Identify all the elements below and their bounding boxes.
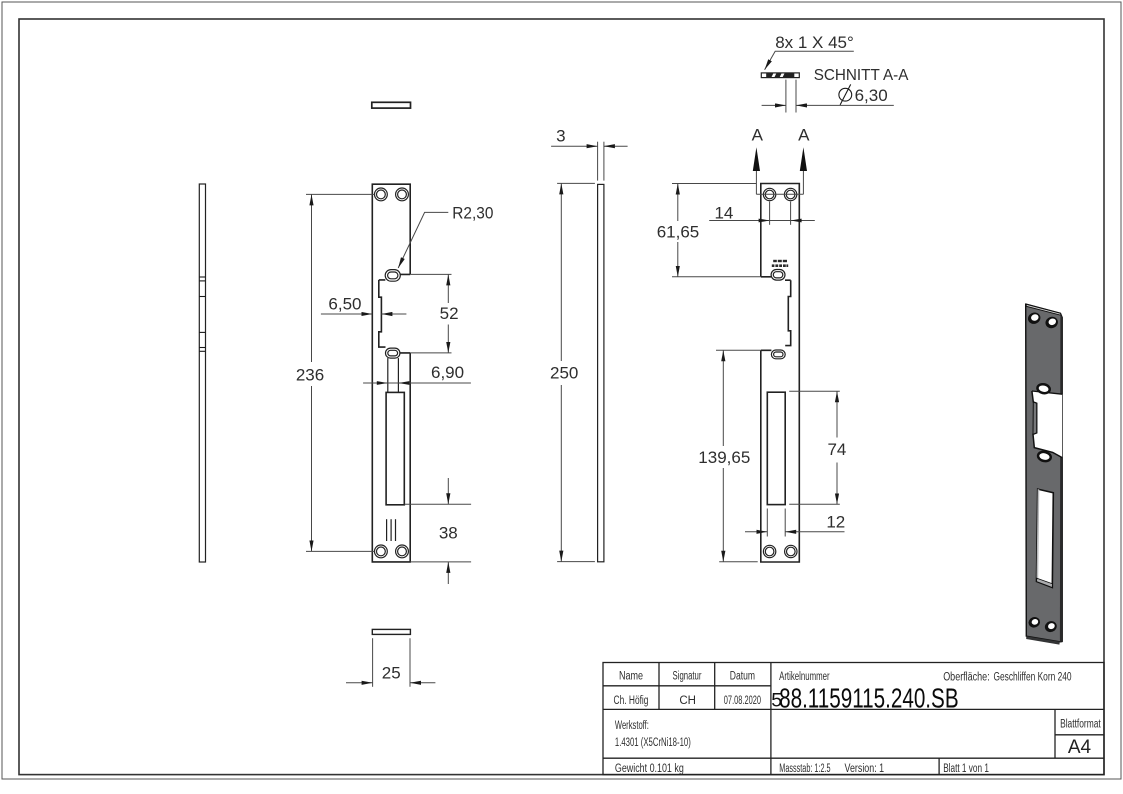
svg-text:6,50: 6,50 <box>328 295 361 314</box>
svg-text:14: 14 <box>714 203 733 222</box>
svg-text:236: 236 <box>296 366 324 385</box>
svg-text:07.08.2020: 07.08.2020 <box>724 695 761 707</box>
svg-text:6,30: 6,30 <box>855 86 888 105</box>
svg-text:R2,30: R2,30 <box>452 203 493 222</box>
svg-text:A: A <box>752 126 764 145</box>
svg-text:SCHNITT A-A: SCHNITT A-A <box>814 67 909 84</box>
svg-text:38: 38 <box>439 523 458 542</box>
svg-text:Artikelnummer: Artikelnummer <box>779 671 830 683</box>
svg-text:1.4301 (X5CrNi18-10): 1.4301 (X5CrNi18-10) <box>615 737 691 749</box>
svg-text:A4: A4 <box>1068 737 1092 758</box>
svg-text:6,90: 6,90 <box>431 363 464 382</box>
svg-text:Blatt 1 von 1: Blatt 1 von 1 <box>943 763 989 775</box>
svg-text:3: 3 <box>556 127 565 146</box>
svg-text:74: 74 <box>827 440 846 459</box>
svg-text:Geschliffen Korn 240: Geschliffen Korn 240 <box>994 672 1072 684</box>
svg-text:12: 12 <box>826 512 845 531</box>
svg-text:Name: Name <box>619 670 643 682</box>
svg-text:Signatur: Signatur <box>673 670 702 682</box>
svg-text:Blattformat: Blattformat <box>1060 719 1101 731</box>
svg-text:Datum: Datum <box>730 670 755 682</box>
svg-text:250: 250 <box>550 364 578 383</box>
svg-text:Ch. Höfig: Ch. Höfig <box>614 695 649 707</box>
svg-text:61,65: 61,65 <box>657 223 700 242</box>
svg-text:88.1159115.240.SB: 88.1159115.240.SB <box>779 682 959 713</box>
svg-text:139,65: 139,65 <box>698 448 750 467</box>
svg-text:25: 25 <box>382 663 401 682</box>
svg-text:CH: CH <box>679 695 696 707</box>
svg-text:8x 1 X 45°: 8x 1 X 45° <box>775 33 854 52</box>
svg-text:Werkstoff:: Werkstoff: <box>615 720 649 732</box>
svg-text:A: A <box>798 126 810 145</box>
svg-text:Gewicht 0.101 kg: Gewicht 0.101 kg <box>615 763 684 775</box>
svg-text:Massstab: 1:2.5: Massstab: 1:2.5 <box>779 763 830 775</box>
svg-text:52: 52 <box>440 304 459 323</box>
svg-text:Version: 1: Version: 1 <box>845 763 885 775</box>
